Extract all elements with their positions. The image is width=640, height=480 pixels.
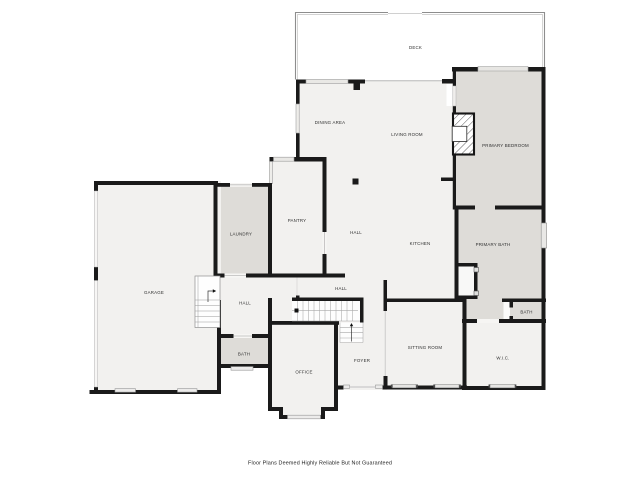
svg-text:HALL: HALL bbox=[335, 286, 347, 291]
svg-text:PRIMARY BEDROOM: PRIMARY BEDROOM bbox=[482, 143, 529, 148]
svg-text:PRIMARY BATH: PRIMARY BATH bbox=[476, 242, 511, 247]
svg-text:BATH: BATH bbox=[238, 352, 250, 357]
svg-text:LAUNDRY: LAUNDRY bbox=[230, 232, 252, 237]
svg-text:Floor Plans Deemed Highly Reli: Floor Plans Deemed Highly Reliable But N… bbox=[248, 461, 392, 467]
svg-text:FOYER: FOYER bbox=[354, 358, 370, 363]
svg-text:PANTRY: PANTRY bbox=[288, 218, 307, 223]
svg-text:KITCHEN: KITCHEN bbox=[410, 241, 431, 246]
svg-text:W.I.C.: W.I.C. bbox=[496, 356, 509, 361]
svg-text:SITTING ROOM: SITTING ROOM bbox=[408, 345, 443, 350]
svg-text:GARAGE: GARAGE bbox=[144, 290, 164, 295]
svg-text:HALL: HALL bbox=[239, 301, 251, 306]
svg-text:BATH: BATH bbox=[520, 310, 532, 315]
svg-text:OFFICE: OFFICE bbox=[295, 370, 312, 375]
svg-text:LIVING ROOM: LIVING ROOM bbox=[391, 132, 423, 137]
svg-text:DECK: DECK bbox=[409, 45, 422, 50]
svg-text:HALL: HALL bbox=[350, 230, 362, 235]
svg-text:DINING AREA: DINING AREA bbox=[315, 120, 346, 125]
